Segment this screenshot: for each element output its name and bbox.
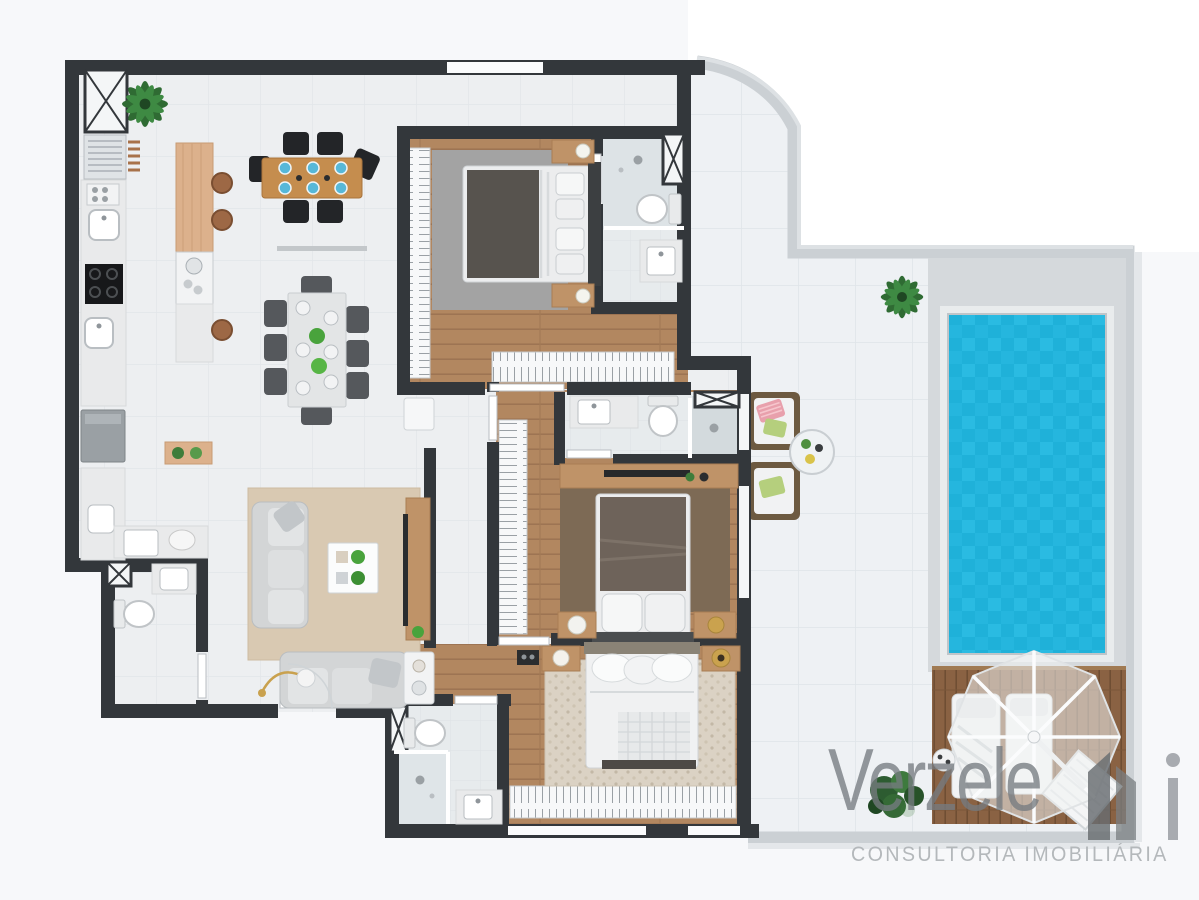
vanity-3 (456, 790, 502, 824)
shower-head-2 (710, 424, 719, 433)
shower-head (634, 156, 643, 165)
suite2-closet (499, 420, 527, 634)
tray-center (718, 655, 725, 662)
suite1-bed (463, 162, 601, 286)
vase (169, 530, 195, 550)
foot-throw (602, 760, 696, 769)
hall-console (404, 398, 434, 430)
suite2-window (739, 486, 749, 598)
shower-head-3 (416, 776, 425, 785)
suite3-shell-lamp (553, 650, 569, 666)
console-plant (412, 626, 424, 638)
bathroom2-vent (695, 392, 739, 407)
suite2-bed (592, 494, 694, 643)
deck-side-table (933, 749, 955, 771)
wall-shelf (277, 246, 367, 251)
suite1-wardrobe (492, 352, 674, 382)
vanity-2 (570, 396, 638, 428)
suite-3 (517, 642, 740, 786)
powder-door (198, 654, 206, 698)
suite3-door (499, 637, 549, 645)
suite3-window (508, 826, 646, 835)
bar-stool-2 (212, 210, 232, 230)
suite2-lamp (708, 617, 724, 633)
vanity-basin (124, 530, 158, 556)
switch-dot (522, 655, 527, 660)
bar-stool-3 (212, 320, 232, 340)
suite-2 (558, 464, 738, 643)
bathroom3-shower (394, 754, 448, 826)
suite1-headboard (588, 162, 601, 286)
tank-sink (88, 505, 114, 533)
bar-stool (212, 173, 232, 193)
powder-basin (160, 568, 188, 590)
window-top (447, 62, 543, 73)
suite2-tv (604, 470, 690, 477)
shelf-jar-2 (190, 447, 202, 459)
console-deco-2 (700, 473, 709, 482)
bathroom3-door (455, 696, 497, 704)
elevator-shaft (85, 70, 127, 132)
parapet-shadow (1134, 252, 1142, 842)
parapet-shadow-bottom (748, 843, 1140, 849)
palm-plant-2 (881, 276, 924, 319)
side-table (404, 652, 434, 704)
shaft-small (107, 562, 131, 586)
terrace-round-table (790, 430, 834, 474)
mini-cooktop (87, 184, 119, 205)
toilet-2 (648, 396, 678, 436)
suite3-window-2 (688, 826, 740, 835)
switch-dot-2 (530, 655, 535, 660)
umbrella (948, 651, 1120, 823)
deck-table-item-2 (946, 760, 951, 765)
suite1-lamp-2 (576, 289, 590, 303)
switch-plate (517, 650, 539, 665)
palm-plant (122, 81, 168, 127)
toilet (637, 194, 681, 224)
sun-deck (932, 651, 1126, 829)
tv (403, 514, 408, 626)
suite2-headboard (592, 632, 694, 643)
vanity (640, 240, 682, 282)
suite3-wardrobe (510, 786, 736, 818)
sofa (252, 499, 308, 628)
shower-drain (619, 168, 624, 173)
suite1-door (490, 384, 564, 391)
wicker-armchair-2 (748, 462, 800, 520)
coffee-table (328, 543, 378, 593)
toilet-3 (404, 718, 445, 748)
kitchen-sink-2 (85, 318, 113, 348)
washer-panel (85, 414, 121, 424)
deck-table-item (938, 755, 943, 760)
bathroom2-door (567, 450, 611, 458)
suite3-bed (584, 642, 700, 769)
living-room (248, 488, 434, 708)
floor-plan-svg (0, 0, 1199, 900)
pool-water (948, 314, 1106, 654)
powder-toilet (114, 600, 154, 628)
kitchen-sink (89, 210, 119, 240)
shower-drain-3 (430, 794, 435, 799)
floor-plan-render: Verzele CONSULTORIA IMOBILIÁRIA (0, 0, 1199, 900)
table-plant-2 (311, 358, 327, 374)
suite1-lamp (576, 144, 590, 158)
tv-console (403, 498, 430, 640)
pool (928, 258, 1126, 672)
suite3-headboard (584, 642, 700, 654)
console-deco (686, 473, 695, 482)
bathroom1-shaft (663, 134, 684, 184)
cooktop (85, 264, 123, 304)
shelf-jar (172, 447, 184, 459)
suite2-deco-ball (568, 616, 586, 634)
suite2-door (489, 396, 497, 440)
table-plant (309, 328, 325, 344)
